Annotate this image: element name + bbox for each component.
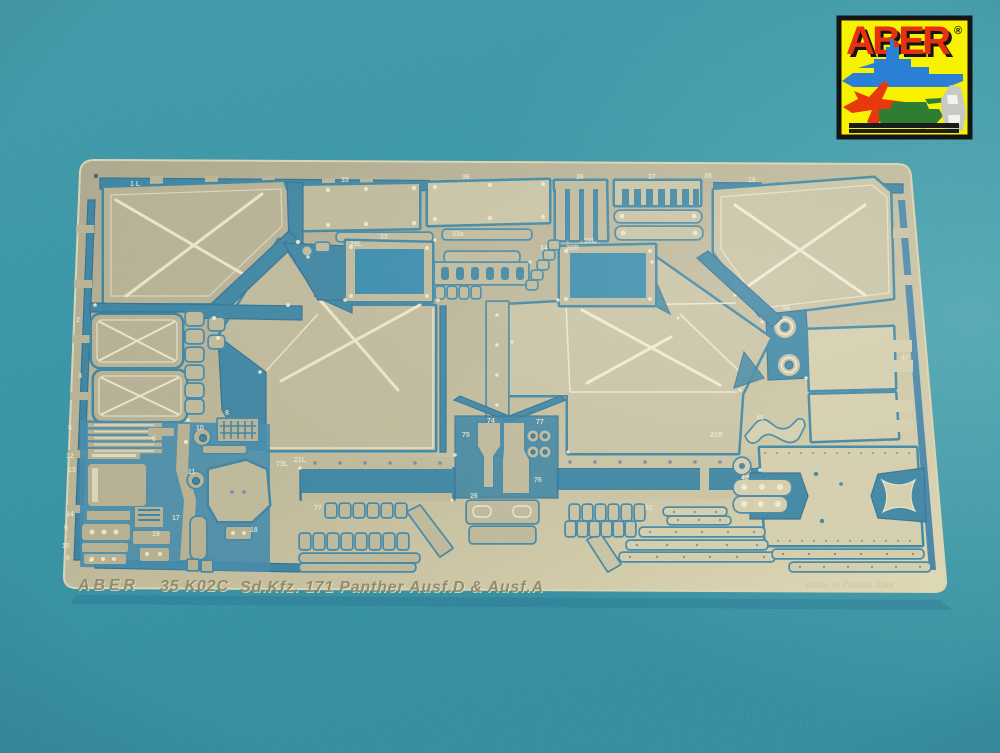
svg-text:®: ® [954, 25, 962, 37]
